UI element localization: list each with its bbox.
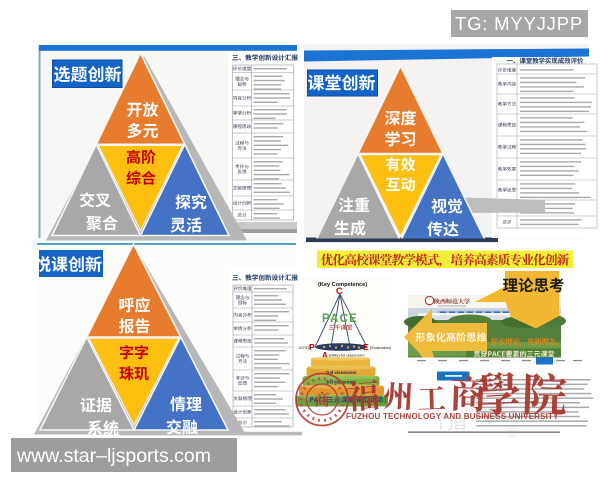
svg-text:TG: MYYJJPP: TG: MYYJJPP <box>455 13 583 34</box>
svg-text:E: E <box>363 342 369 352</box>
svg-text:FUZHOU TECHNOLOGY AND BUSINESS: FUZHOU TECHNOLOGY AND BUSINESS UNIVERSIT… <box>346 412 559 421</box>
svg-text:(Key Competence): (Key Competence) <box>318 282 367 288</box>
svg-text:ACRES: ACRES <box>299 346 310 350</box>
svg-text:PACE: PACE <box>322 313 358 325</box>
svg-text:www.star–ljsports.com: www.star–ljsports.com <box>16 445 211 467</box>
svg-text:(Evaluation): (Evaluation) <box>370 345 392 350</box>
